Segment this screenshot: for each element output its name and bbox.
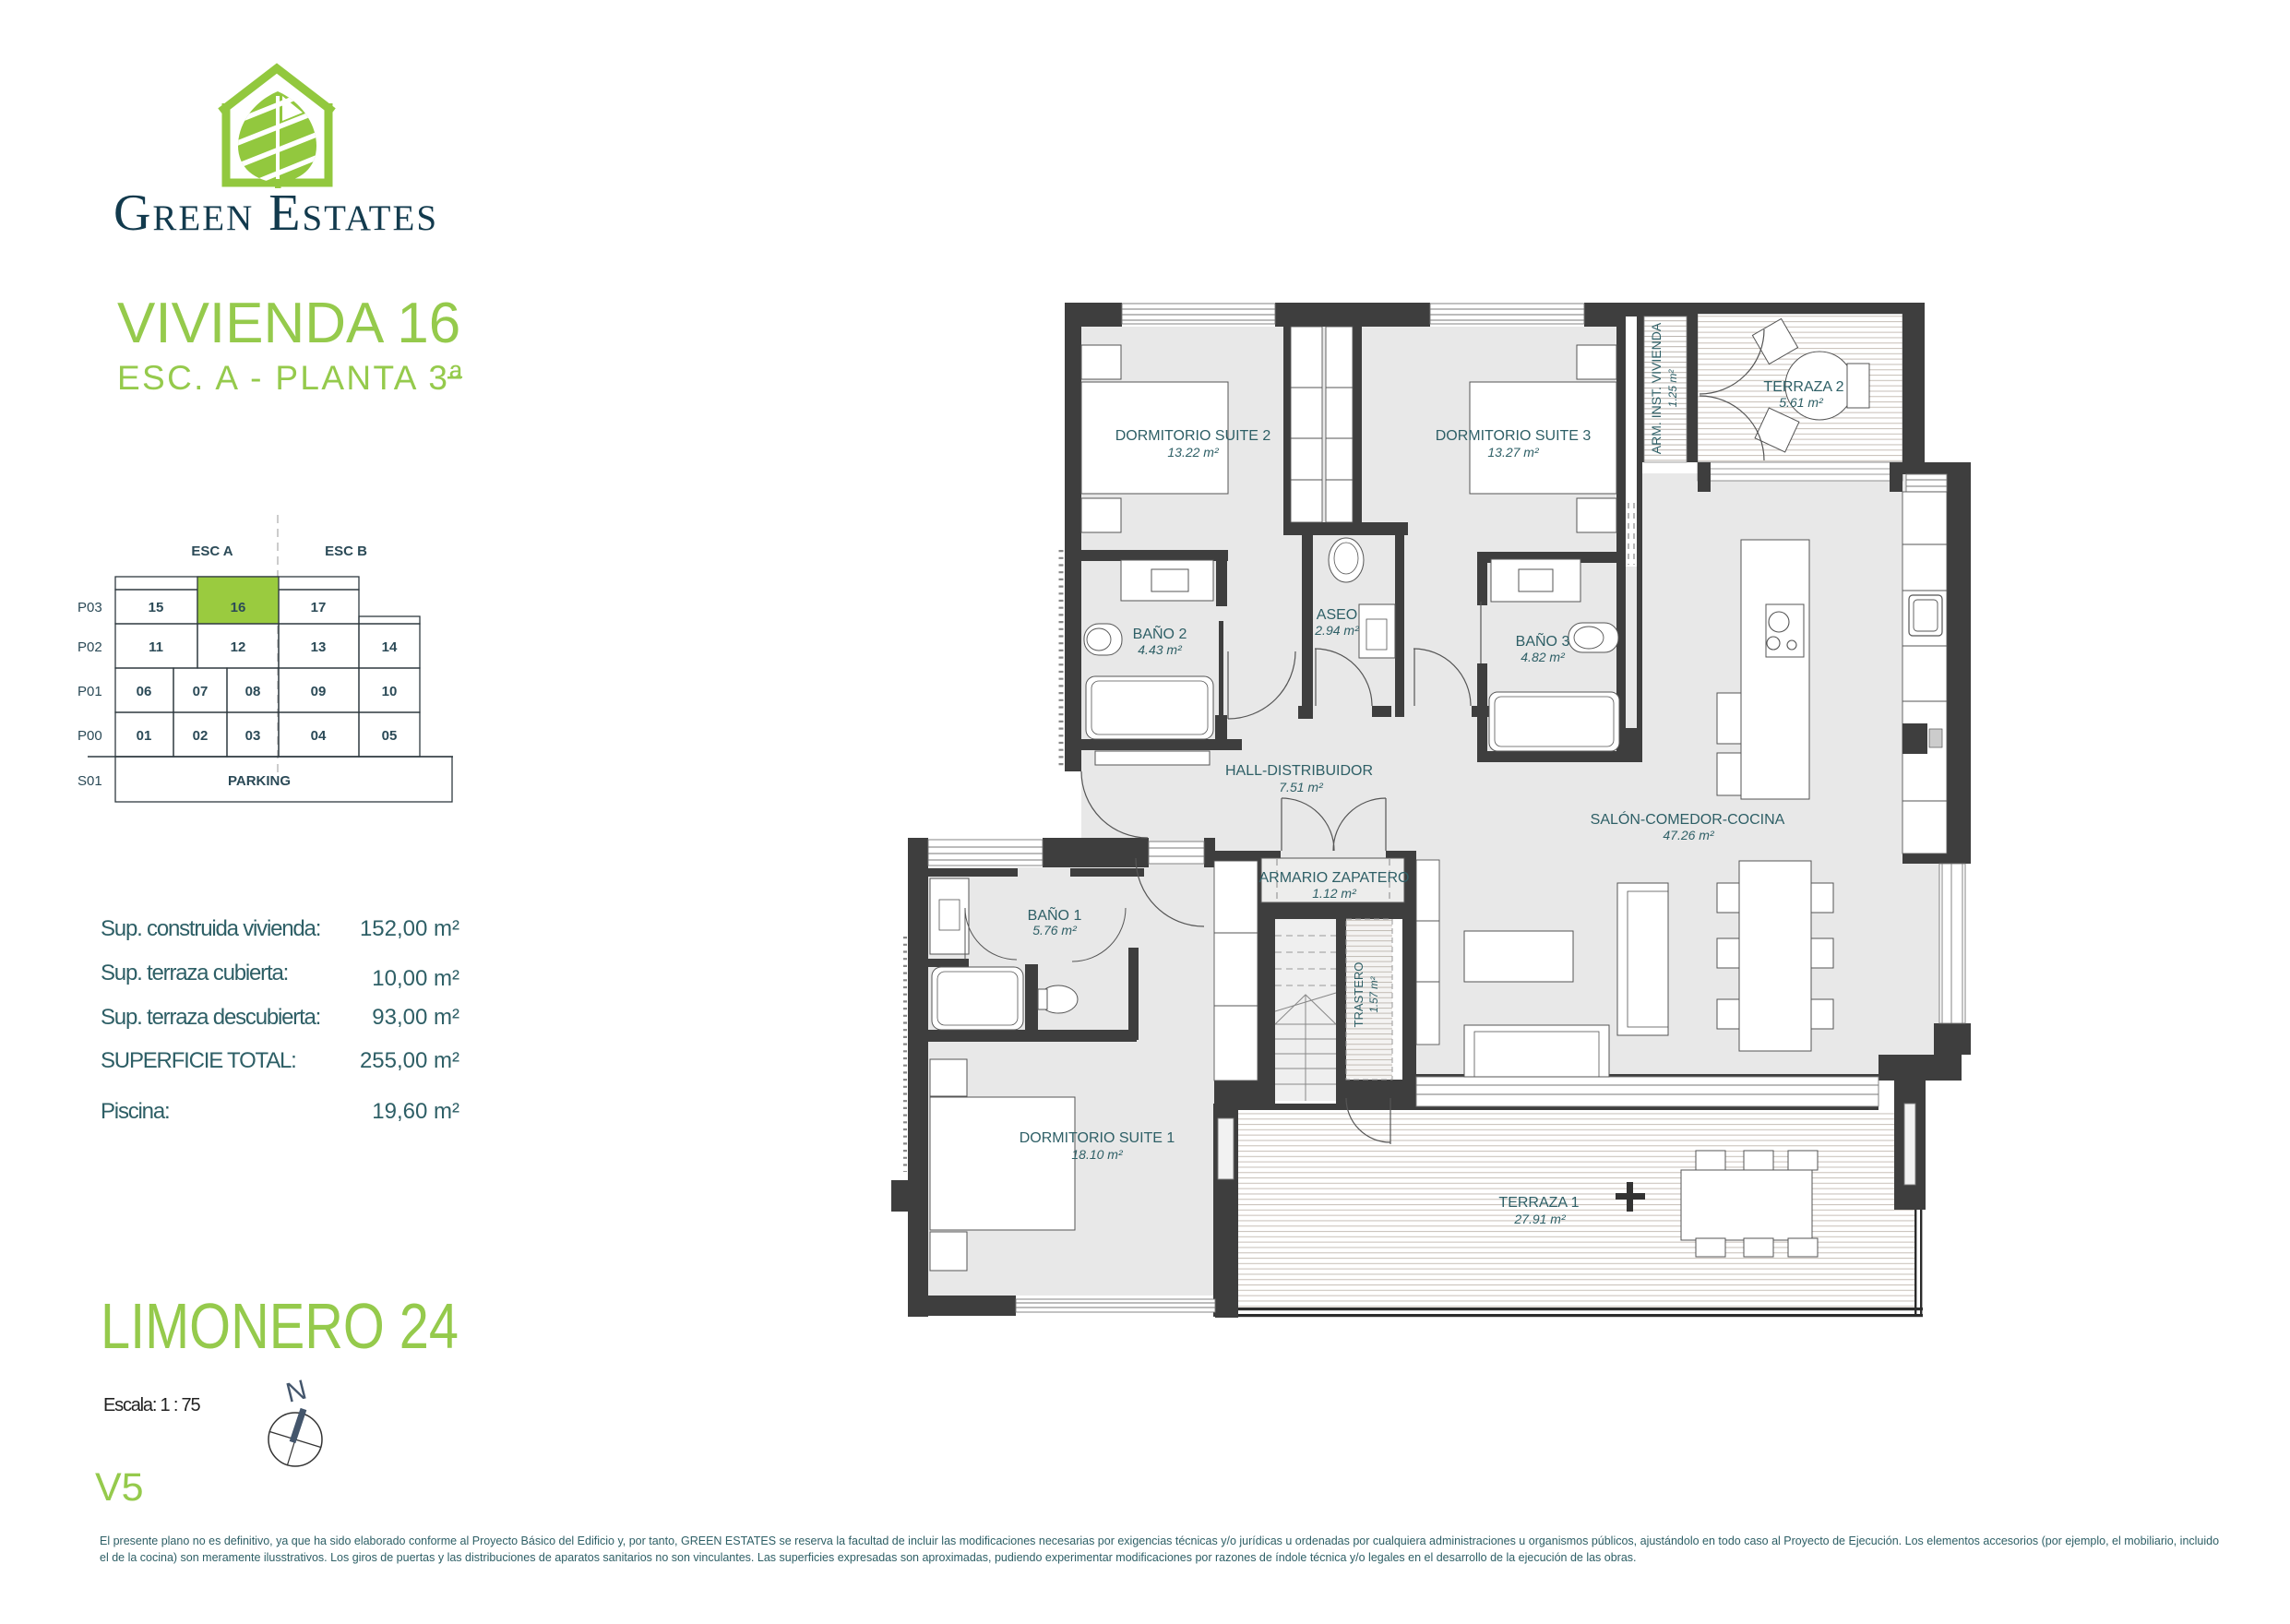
svg-text:SUPERFICIE TOTAL:: SUPERFICIE TOTAL: xyxy=(101,1048,296,1073)
svg-text:BAÑO 1: BAÑO 1 xyxy=(1028,905,1082,924)
svg-text:P03: P03 xyxy=(78,600,102,615)
svg-text:09: 09 xyxy=(311,684,327,699)
svg-text:15: 15 xyxy=(149,600,164,615)
svg-text:255,00 m²: 255,00 m² xyxy=(360,1048,459,1073)
svg-text:4.43 m²: 4.43 m² xyxy=(1138,642,1183,657)
svg-text:P00: P00 xyxy=(78,728,102,744)
svg-text:ESC B: ESC B xyxy=(325,543,367,559)
svg-text:10: 10 xyxy=(382,684,398,699)
svg-text:DORMITORIO SUITE 1: DORMITORIO SUITE 1 xyxy=(1020,1130,1175,1146)
svg-text:Sup. construida vivienda:: Sup. construida vivienda: xyxy=(101,916,320,941)
svg-text:04: 04 xyxy=(311,728,327,744)
svg-text:SALÓN-COMEDOR-COCINA: SALÓN-COMEDOR-COCINA xyxy=(1591,810,1785,828)
svg-text:LIMONERO 24: LIMONERO 24 xyxy=(101,1290,459,1362)
svg-text:1.57 m²: 1.57 m² xyxy=(1369,975,1380,1012)
svg-text:14: 14 xyxy=(382,639,398,655)
svg-text:11: 11 xyxy=(149,639,163,655)
svg-text:El presente plano no es defini: El presente plano no es definitivo, ya q… xyxy=(100,1534,2219,1547)
svg-text:93,00 m²: 93,00 m² xyxy=(372,1005,459,1030)
svg-text:Escala: 1 : 75: Escala: 1 : 75 xyxy=(103,1395,200,1415)
svg-text:152,00 m²: 152,00 m² xyxy=(360,916,459,941)
svg-text:18.10 m²: 18.10 m² xyxy=(1071,1147,1124,1162)
svg-text:4.82 m²: 4.82 m² xyxy=(1521,650,1566,664)
svg-text:ESC A: ESC A xyxy=(191,543,233,559)
svg-text:03: 03 xyxy=(245,728,261,744)
svg-text:05: 05 xyxy=(382,728,398,744)
svg-text:Piscina:: Piscina: xyxy=(101,1099,169,1124)
svg-text:TERRAZA 1: TERRAZA 1 xyxy=(1498,1195,1579,1211)
svg-text:V5: V5 xyxy=(95,1465,144,1510)
svg-text:N: N xyxy=(283,1375,310,1409)
svg-text:47.26 m²: 47.26 m² xyxy=(1663,828,1715,842)
svg-text:2.94 m²: 2.94 m² xyxy=(1314,623,1360,638)
svg-text:19,60 m²: 19,60 m² xyxy=(372,1099,459,1124)
svg-text:10,00 m²: 10,00 m² xyxy=(372,966,459,991)
svg-text:13.22 m²: 13.22 m² xyxy=(1167,445,1220,460)
svg-text:DORMITORIO SUITE 2: DORMITORIO SUITE 2 xyxy=(1115,428,1271,444)
svg-text:06: 06 xyxy=(137,684,152,699)
svg-text:el de la cocina) son meramente: el de la cocina) son meramente ilusstrat… xyxy=(100,1551,1637,1564)
svg-text:ASEO: ASEO xyxy=(1317,607,1357,623)
svg-text:13.27 m²: 13.27 m² xyxy=(1487,445,1540,460)
svg-text:P02: P02 xyxy=(78,639,102,655)
svg-text:1.25 m²: 1.25 m² xyxy=(1666,369,1679,408)
svg-text:ARMARIO ZAPATERO: ARMARIO ZAPATERO xyxy=(1259,870,1410,886)
svg-text:7.51 m²: 7.51 m² xyxy=(1279,780,1324,794)
svg-text:Green Estates: Green Estates xyxy=(113,185,438,242)
svg-text:08: 08 xyxy=(245,684,261,699)
svg-text:ARM. INST. VIVIENDA: ARM. INST. VIVIENDA xyxy=(1649,322,1664,454)
svg-text:BAÑO 2: BAÑO 2 xyxy=(1133,624,1187,642)
svg-text:1.12 m²: 1.12 m² xyxy=(1312,886,1357,901)
svg-text:27.91 m²: 27.91 m² xyxy=(1513,1212,1567,1226)
svg-text:17: 17 xyxy=(311,600,327,615)
svg-text:Sup. terraza cubierta:: Sup. terraza cubierta: xyxy=(101,961,288,985)
svg-text:PARKING: PARKING xyxy=(228,773,291,789)
svg-text:BAÑO 3: BAÑO 3 xyxy=(1516,631,1570,650)
svg-text:12: 12 xyxy=(231,639,246,655)
svg-text:ESC. A - PLANTA 3ª: ESC. A - PLANTA 3ª xyxy=(117,359,462,397)
svg-text:5.76 m²: 5.76 m² xyxy=(1032,923,1078,937)
svg-text:02: 02 xyxy=(193,728,209,744)
svg-text:5.61 m²: 5.61 m² xyxy=(1779,395,1824,410)
svg-text:DORMITORIO SUITE 3: DORMITORIO SUITE 3 xyxy=(1436,428,1592,444)
svg-text:01: 01 xyxy=(137,728,152,744)
svg-text:HALL-DISTRIBUIDOR: HALL-DISTRIBUIDOR xyxy=(1225,763,1373,779)
svg-text:TERRAZA 2: TERRAZA 2 xyxy=(1763,379,1843,395)
svg-text:Sup. terraza descubierta:: Sup. terraza descubierta: xyxy=(101,1005,320,1030)
svg-text:VIVIENDA 16: VIVIENDA 16 xyxy=(117,292,460,355)
svg-text:TRASTERO: TRASTERO xyxy=(1352,962,1366,1028)
svg-text:16: 16 xyxy=(231,600,246,615)
svg-text:S01: S01 xyxy=(78,773,102,789)
svg-text:13: 13 xyxy=(311,639,327,655)
svg-text:P01: P01 xyxy=(78,684,102,699)
svg-text:07: 07 xyxy=(193,684,209,699)
